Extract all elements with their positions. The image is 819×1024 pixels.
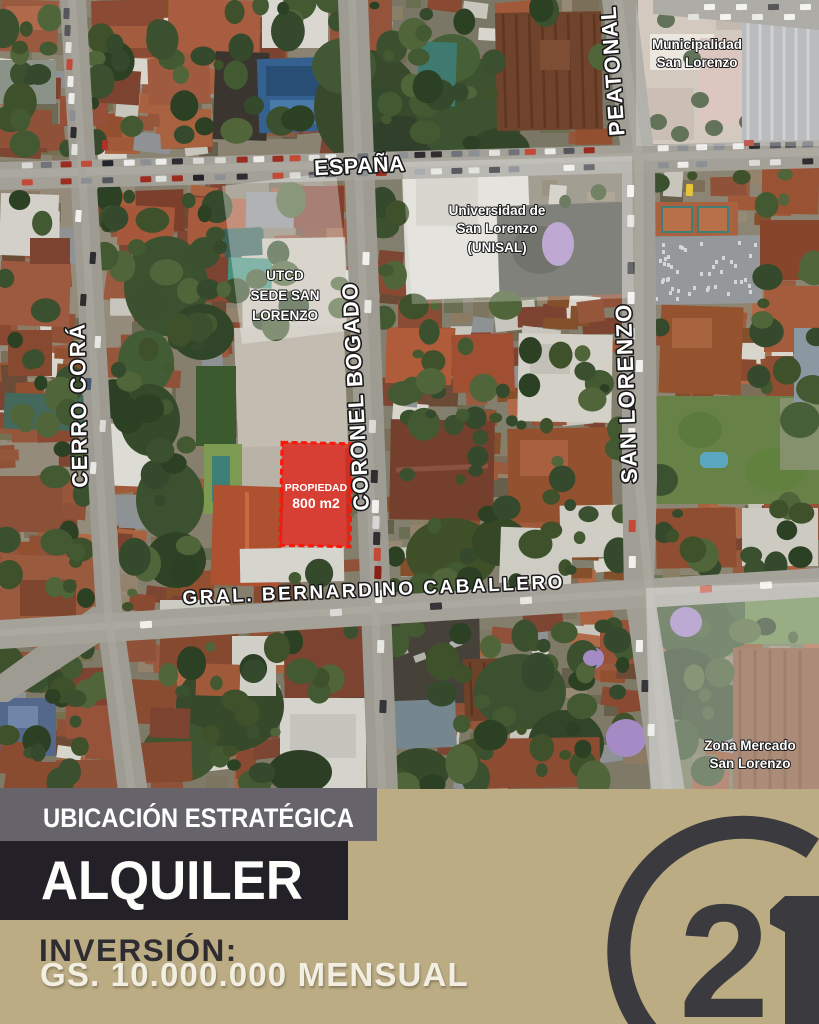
svg-text:Municipalidad: Municipalidad: [652, 37, 742, 52]
svg-text:San Lorenzo: San Lorenzo: [709, 756, 790, 771]
svg-text:800 m2: 800 m2: [292, 495, 340, 511]
svg-text:Zona Mercado: Zona Mercado: [704, 738, 796, 753]
svg-text:2: 2: [679, 871, 769, 1024]
svg-text:San Lorenzo: San Lorenzo: [456, 221, 537, 236]
svg-text:San Lorenzo: San Lorenzo: [656, 55, 737, 70]
svg-text:(UNISAL): (UNISAL): [467, 240, 526, 255]
svg-text:SEDE SAN: SEDE SAN: [250, 288, 319, 303]
svg-text:Universidad de: Universidad de: [449, 203, 546, 218]
svg-text:ESPAÑA: ESPAÑA: [314, 151, 406, 181]
svg-text:LORENZO: LORENZO: [252, 308, 318, 323]
svg-text:CERRO CORÁ: CERRO CORÁ: [65, 322, 93, 488]
svg-text:UTCD: UTCD: [266, 268, 304, 283]
svg-text:PROPIEDAD: PROPIEDAD: [285, 482, 348, 494]
